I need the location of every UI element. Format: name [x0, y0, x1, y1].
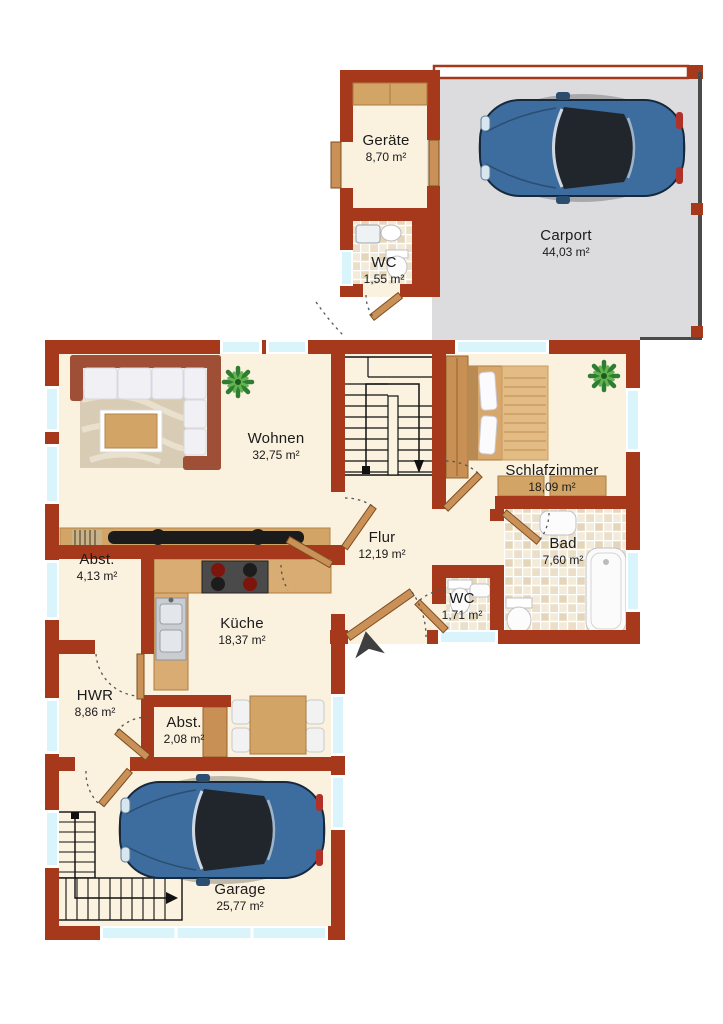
- carport-post: [691, 203, 703, 215]
- toilet-icon: [506, 598, 532, 633]
- room-label-abstellraum-1: Abst. 4,13 m²: [77, 551, 118, 583]
- room-area: 44,03 m²: [540, 245, 591, 259]
- room-area: 25,77 m²: [214, 899, 265, 913]
- bed: [468, 366, 548, 460]
- plant-icon: [590, 362, 618, 390]
- storage-cabinet: [203, 707, 227, 757]
- room-name: Geräte: [362, 132, 409, 150]
- room-name: HWR: [75, 687, 116, 705]
- room-name: Abst.: [164, 714, 205, 732]
- room-label-hwr: HWR 8,86 m²: [75, 687, 116, 719]
- carport-car-icon: [478, 92, 686, 204]
- door-leaf: [137, 654, 144, 699]
- floor-plan-page: Geräte 8,70 m² WC 1,55 m² Carport 44,03 …: [0, 0, 723, 1024]
- carport-post: [691, 326, 703, 338]
- bath-sink-icon: [540, 511, 576, 535]
- door-leaf: [429, 140, 439, 186]
- room-label-kueche: Küche 18,37 m²: [218, 615, 265, 647]
- garage-car-icon: [118, 774, 326, 886]
- room-area: 4,13 m²: [77, 569, 118, 583]
- room-name: Schlafzimmer: [505, 462, 598, 480]
- coffee-table: [100, 410, 162, 452]
- room-name: Wohnen: [248, 430, 305, 448]
- room-area: 18,37 m²: [218, 633, 265, 647]
- chair: [232, 728, 250, 752]
- room-area: 1,55 m²: [364, 272, 405, 286]
- room-name: Flur: [358, 529, 405, 547]
- room-area: 2,08 m²: [164, 732, 205, 746]
- room-name: WC: [442, 590, 483, 608]
- dining-table: [250, 696, 306, 754]
- garage-gate: [100, 926, 328, 940]
- room-label-abstellraum-2: Abst. 2,08 m²: [164, 714, 205, 746]
- room-name: Carport: [540, 227, 591, 245]
- room-area: 8,70 m²: [362, 150, 409, 164]
- room-area: 32,75 m²: [248, 448, 305, 462]
- stove-icon: [202, 561, 268, 593]
- room-label-carport: Carport 44,03 m²: [540, 227, 591, 259]
- room-label-wohnen: Wohnen 32,75 m²: [248, 430, 305, 462]
- room-label-wc: WC 1,71 m²: [442, 590, 483, 622]
- room-name: WC: [364, 254, 405, 272]
- room-label-flur: Flur 12,19 m²: [358, 529, 405, 561]
- bathtub-icon: [586, 548, 626, 634]
- door-leaf: [331, 142, 341, 188]
- room-area: 8,86 m²: [75, 705, 116, 719]
- carport-area: [432, 65, 703, 340]
- room-area: 1,71 m²: [442, 608, 483, 622]
- room-area: 18,09 m²: [505, 480, 598, 494]
- room-label-geraete: Geräte 8,70 m²: [362, 132, 409, 164]
- sink-icon: [156, 598, 186, 661]
- room-label-schlafzimmer: Schlafzimmer 18,09 m²: [505, 462, 598, 494]
- room-label-wc-outbuilding: WC 1,55 m²: [364, 254, 405, 286]
- room-label-bad: Bad 7,60 m²: [543, 535, 584, 567]
- chair: [306, 700, 324, 724]
- plant-icon: [224, 368, 252, 396]
- room-name: Garage: [214, 881, 265, 899]
- room-name: Abst.: [77, 551, 118, 569]
- room-area: 12,19 m²: [358, 547, 405, 561]
- chair: [232, 700, 250, 724]
- room-name: Küche: [218, 615, 265, 633]
- chair: [306, 728, 324, 752]
- room-label-garage: Garage 25,77 m²: [214, 881, 265, 913]
- room-name: Bad: [543, 535, 584, 553]
- main-staircase-icon: [342, 357, 438, 475]
- room-area: 7,60 m²: [543, 553, 584, 567]
- window: [340, 250, 353, 286]
